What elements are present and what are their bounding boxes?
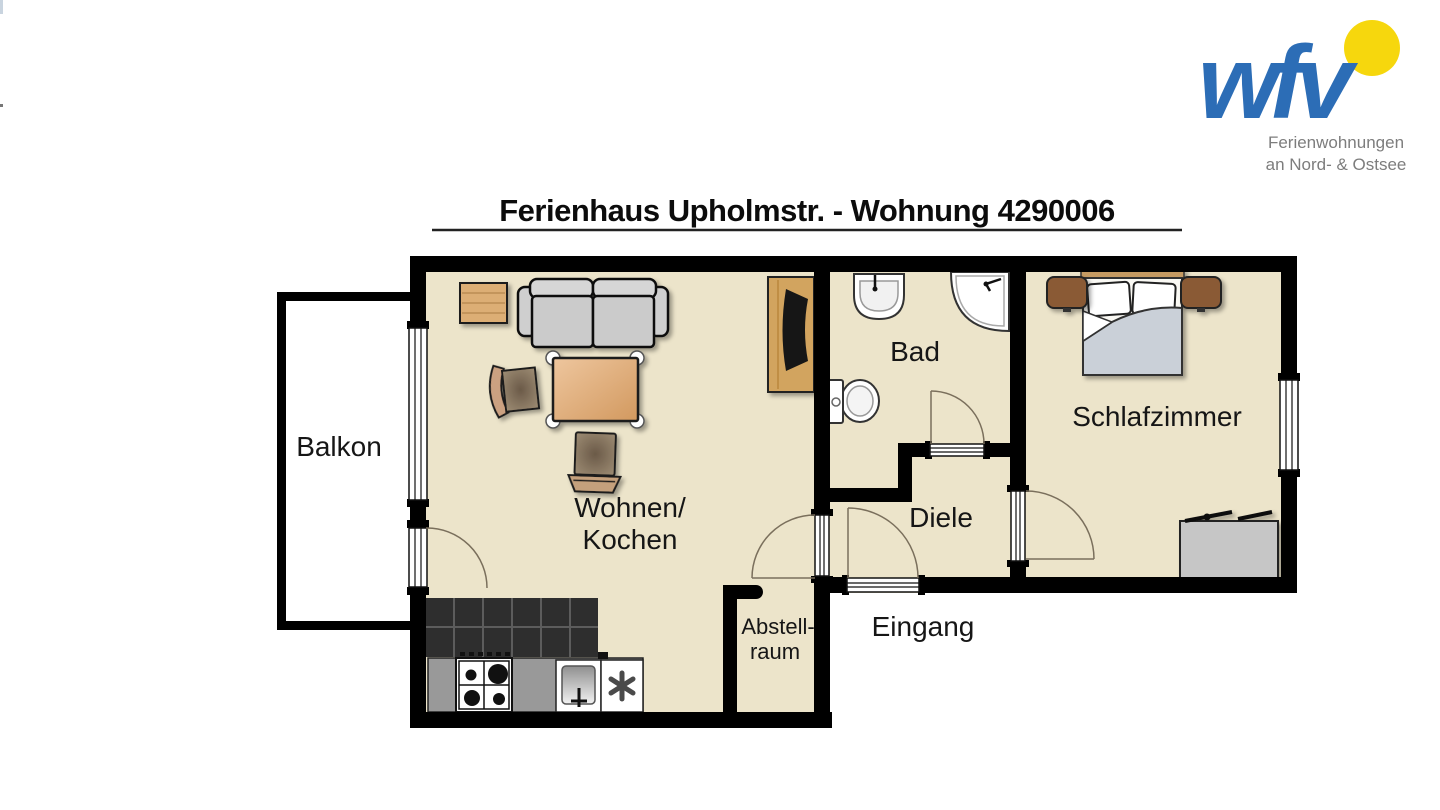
plan-title: Ferienhaus Upholmstr. - Wohnung 4290006 [432,193,1182,230]
kitchen-sink-icon [556,660,601,712]
wfv-wordmark: wfv [1198,25,1359,141]
kitchen-tiles [425,598,598,657]
toilet-icon [828,380,879,423]
dresser-icon [1180,512,1278,579]
stove-icon [456,652,512,712]
room-label-abstellraum-2: raum [750,639,800,664]
room-label-bad: Bad [890,336,940,367]
edge-artifact [0,0,3,14]
window-bedroom [1278,373,1300,477]
dining-table-icon [546,351,644,428]
floor-plan-page: wfv Ferienwohnungen an Nord- & Ostsee Fe… [0,0,1440,810]
room-label-eingang: Eingang [872,611,975,642]
dishwasher-icon [598,652,643,712]
room-label-kochen: Kochen [583,524,678,555]
window-livingroom [407,321,429,507]
edge-artifact [0,104,3,107]
nightstand-right-icon [1181,277,1221,312]
double-bed-icon [1081,269,1184,375]
pillow-icon [1087,282,1131,317]
tv-board-icon [768,277,814,392]
sun-icon [1344,20,1400,76]
page-title: Ferienhaus Upholmstr. - Wohnung 4290006 [499,193,1115,228]
room-label-abstellraum-1: Abstell- [741,614,814,639]
chair-icon [568,432,622,493]
room-label-schlafzimmer: Schlafzimmer [1072,401,1242,432]
logo-tagline-line1: Ferienwohnungen [1268,133,1404,152]
bathroom-sink-icon [854,274,904,319]
wfv-logo: wfv Ferienwohnungen an Nord- & Ostsee [1198,20,1406,174]
room-label-wohnen: Wohnen/ [574,492,686,523]
side-table-icon [460,283,507,323]
nightstand-left-icon [1047,277,1087,312]
room-label-balkon: Balkon [296,431,382,462]
tv-icon [783,289,809,371]
sofa-icon [518,279,668,347]
logo-tagline-line2: an Nord- & Ostsee [1266,155,1407,174]
kitchen-counter-icon [428,652,643,712]
floor-plan-canvas: wfv Ferienwohnungen an Nord- & Ostsee Fe… [0,0,1440,810]
armchair-icon [487,362,539,419]
room-label-diele: Diele [909,502,973,533]
